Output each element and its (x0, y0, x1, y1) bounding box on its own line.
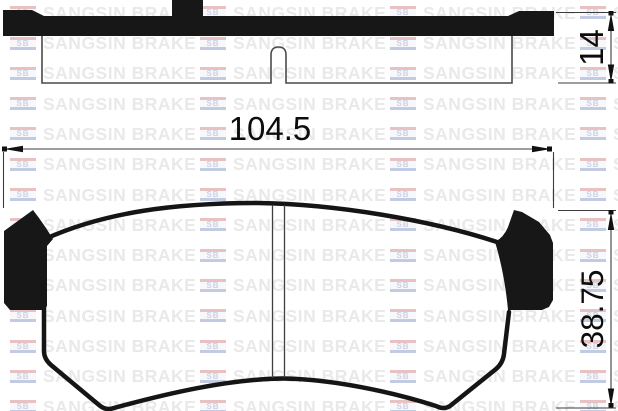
front-view (4, 203, 553, 409)
dim-thickness: 14 (556, 11, 616, 84)
brake-pad-technical-drawing: 14 104.5 (0, 0, 618, 411)
backing-plate-tab (172, 0, 203, 16)
right-ear (495, 210, 553, 310)
left-ear (4, 210, 53, 310)
pad-top-edge (45, 203, 497, 242)
side-view (3, 0, 554, 83)
dim-thickness-label: 14 (573, 29, 610, 66)
dim-width-label: 104.5 (229, 110, 312, 147)
dim-height-label: 38.75 (574, 270, 610, 349)
dim-width: 104.5 (2, 110, 554, 208)
dim-height: 38.75 (556, 210, 616, 408)
brake-pad-drawing-canvas: SBSANGSIN BRAKESBSANGSIN BRAKESBSANGSIN … (0, 0, 618, 411)
backing-plate-side (3, 10, 554, 36)
pad-bottom-edge (44, 307, 509, 409)
friction-material-outline (42, 36, 512, 83)
